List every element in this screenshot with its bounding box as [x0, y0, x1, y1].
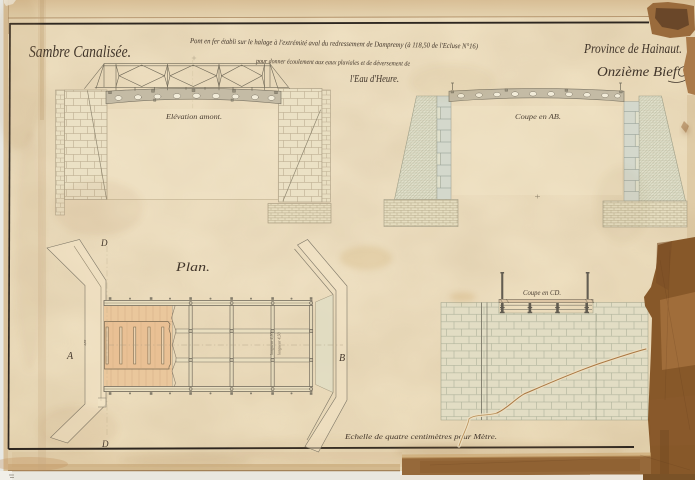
- svg-text:Coupe en CD.: Coupe en CD.: [523, 288, 561, 297]
- svg-text:Elévation amont.: Elévation amont.: [165, 112, 222, 121]
- svg-text:Province de Hainaut.: Province de Hainaut.: [583, 41, 682, 56]
- svg-text:Onzième Bief: Onzième Bief: [597, 65, 679, 80]
- svg-text:A: A: [66, 351, 74, 362]
- svg-text:B: B: [339, 353, 345, 364]
- svg-text:Sambre Canalisée.: Sambre Canalisée.: [29, 42, 131, 61]
- svg-text:Coupe en AB.: Coupe en AB.: [515, 112, 561, 121]
- svg-text:Plan.: Plan.: [175, 259, 210, 274]
- svg-text:l'Eau d'Heure.: l'Eau d'Heure.: [350, 74, 399, 85]
- svg-text:D: D: [100, 238, 108, 248]
